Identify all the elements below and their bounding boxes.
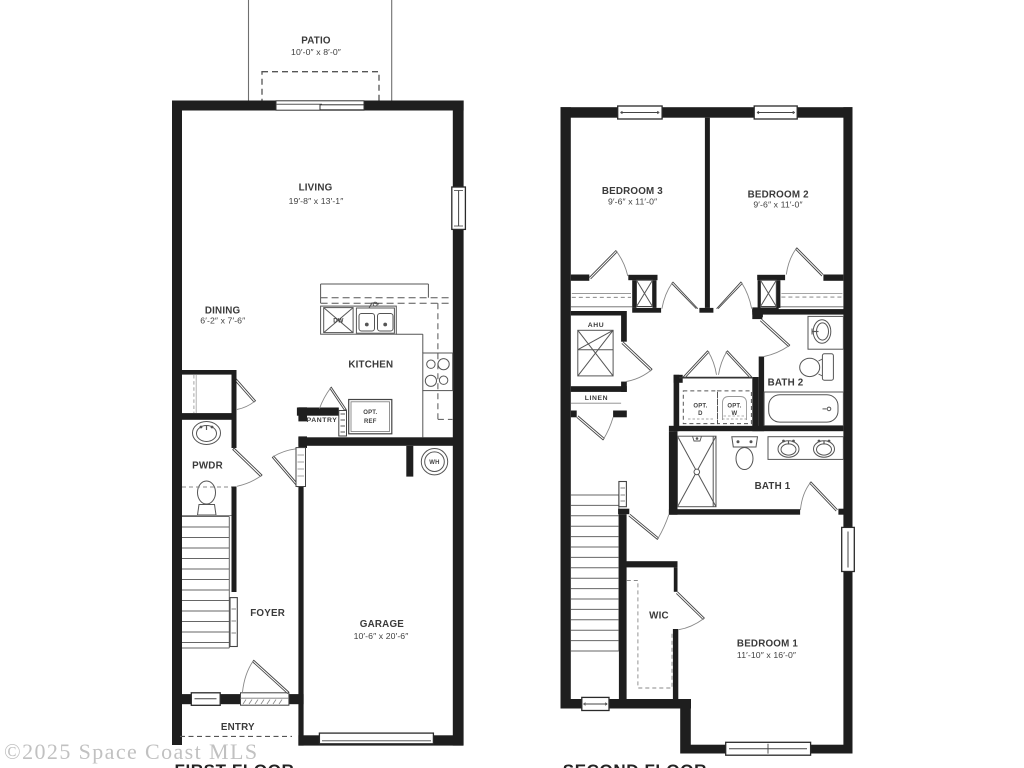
svg-text:PANTRY: PANTRY [307, 417, 338, 424]
svg-text:WIC: WIC [649, 611, 669, 622]
svg-text:GARAGE: GARAGE [360, 619, 404, 630]
svg-text:11′-10″ x 16′-0″: 11′-10″ x 16′-0″ [737, 650, 796, 660]
svg-text:LIVING: LIVING [299, 182, 333, 193]
svg-text:WH: WH [429, 460, 439, 466]
svg-text:PATIO: PATIO [301, 36, 331, 47]
svg-text:BATH 1: BATH 1 [755, 481, 791, 492]
svg-text:6′-2″ x 7′-6″: 6′-2″ x 7′-6″ [200, 316, 245, 326]
svg-text:BATH 2: BATH 2 [768, 378, 804, 389]
svg-text:SECOND FLOOR: SECOND FLOOR [563, 761, 707, 768]
svg-text:OPT.: OPT. [727, 404, 741, 410]
svg-text:10′-0″ x 8′-0″: 10′-0″ x 8′-0″ [291, 47, 341, 57]
svg-text:AHU: AHU [588, 322, 605, 329]
svg-text:9′-6″ x 11′-0″: 9′-6″ x 11′-0″ [608, 196, 657, 206]
svg-text:KITCHEN: KITCHEN [348, 360, 393, 371]
svg-text:FOYER: FOYER [250, 608, 285, 619]
svg-text:©2025 Space Coast MLS: ©2025 Space Coast MLS [4, 739, 259, 764]
svg-text:LINEN: LINEN [585, 395, 608, 402]
svg-text:19′-8″ x 13′-1″: 19′-8″ x 13′-1″ [289, 196, 344, 206]
svg-text:10′-6″ x 20′-6″: 10′-6″ x 20′-6″ [354, 631, 409, 641]
svg-text:ENTRY: ENTRY [221, 722, 255, 733]
svg-text:D: D [698, 411, 703, 417]
svg-text:REF: REF [364, 419, 377, 425]
svg-text:BEDROOM 1: BEDROOM 1 [737, 639, 798, 650]
svg-text:DW: DW [333, 319, 344, 325]
svg-text:OPT.: OPT. [363, 410, 377, 416]
svg-text:9′-6″ x 11′-0″: 9′-6″ x 11′-0″ [753, 200, 802, 210]
svg-text:OPT.: OPT. [693, 404, 707, 410]
svg-text:PWDR: PWDR [192, 461, 223, 472]
